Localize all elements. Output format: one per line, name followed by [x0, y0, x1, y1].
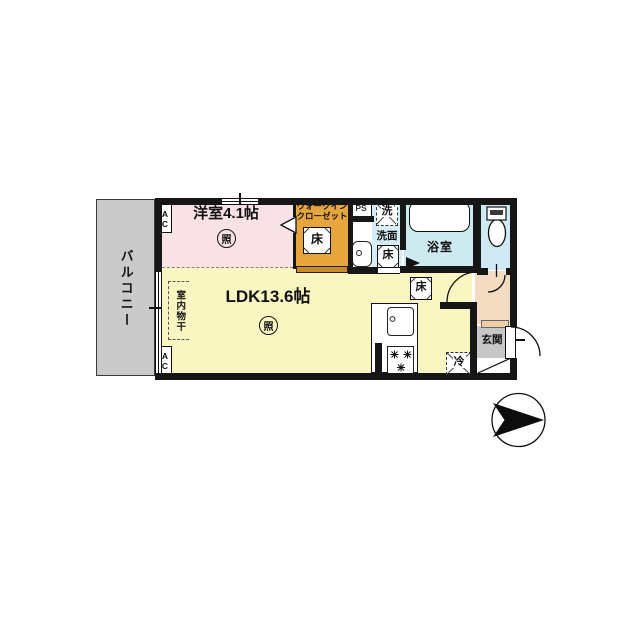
wall-bathroom-toilet	[473, 198, 481, 268]
wall-closet-east	[348, 198, 353, 273]
wall-east-lower	[510, 358, 517, 380]
hall-floor	[475, 271, 512, 324]
washroom-floor-hatch-label: 床	[377, 249, 399, 261]
bedroom-ldk-partition	[162, 267, 293, 269]
wall-toilet-south-b	[506, 268, 511, 275]
wall-hall-stub	[440, 302, 470, 309]
washroom-sliding-door	[378, 267, 400, 274]
vanity-bowl-dot	[356, 250, 362, 256]
bedroom-light-symbol: 照	[217, 229, 236, 248]
washroom-label: 洗面	[371, 231, 403, 243]
ldk-balcony-window	[155, 272, 162, 373]
bathtub	[409, 201, 470, 232]
wall-kitchen-stub	[375, 343, 382, 373]
closet-door	[296, 266, 348, 273]
entrance-door-handle	[516, 339, 525, 341]
wall-washroom-south	[348, 267, 378, 274]
closet-floor-hatch-label: 床	[303, 233, 331, 246]
bathroom-label: 浴室	[417, 241, 463, 254]
closet-label-line2: クローゼット	[296, 212, 348, 221]
indoor-drying-box: 室内物干	[168, 281, 189, 340]
refrigerator-label: 冷	[446, 356, 472, 368]
closet-label-line1: ウォークイン	[296, 202, 348, 211]
wall-east-upper	[510, 198, 517, 327]
vanity-unit	[352, 241, 372, 267]
floor-plan: AC AC PS	[0, 0, 640, 640]
wall-bedroom-closet-b	[293, 233, 296, 269]
wall-hall-ldk	[470, 302, 477, 380]
bedroom-label: 洋室4.1帖	[176, 206, 276, 223]
kitchen-sink	[387, 307, 414, 336]
ldk-light-symbol: 照	[259, 316, 278, 335]
balcony-label: バルコニー	[96, 244, 155, 334]
toilet-floor	[479, 203, 512, 270]
bedroom-window-tick	[239, 193, 241, 204]
ldk-floor-hatch-label: 床	[410, 281, 432, 293]
wall-toilet-south-a	[477, 268, 488, 275]
wall-bottom	[155, 373, 517, 380]
entrance-step-line	[478, 359, 510, 374]
wall-ps-bottom	[348, 216, 374, 222]
washer-space-label: 洗	[376, 205, 398, 217]
kitchen-stove	[387, 346, 414, 374]
ldk-label: LDK13.6帖	[198, 288, 338, 307]
wall-west-upper	[155, 198, 162, 272]
north-arrow-compass	[492, 394, 545, 447]
wall-top-left	[155, 198, 222, 205]
wall-bathroom-south	[400, 266, 481, 273]
entrance-label: 玄関	[477, 335, 507, 347]
indoor-drying-label: 室内物干	[174, 290, 184, 332]
